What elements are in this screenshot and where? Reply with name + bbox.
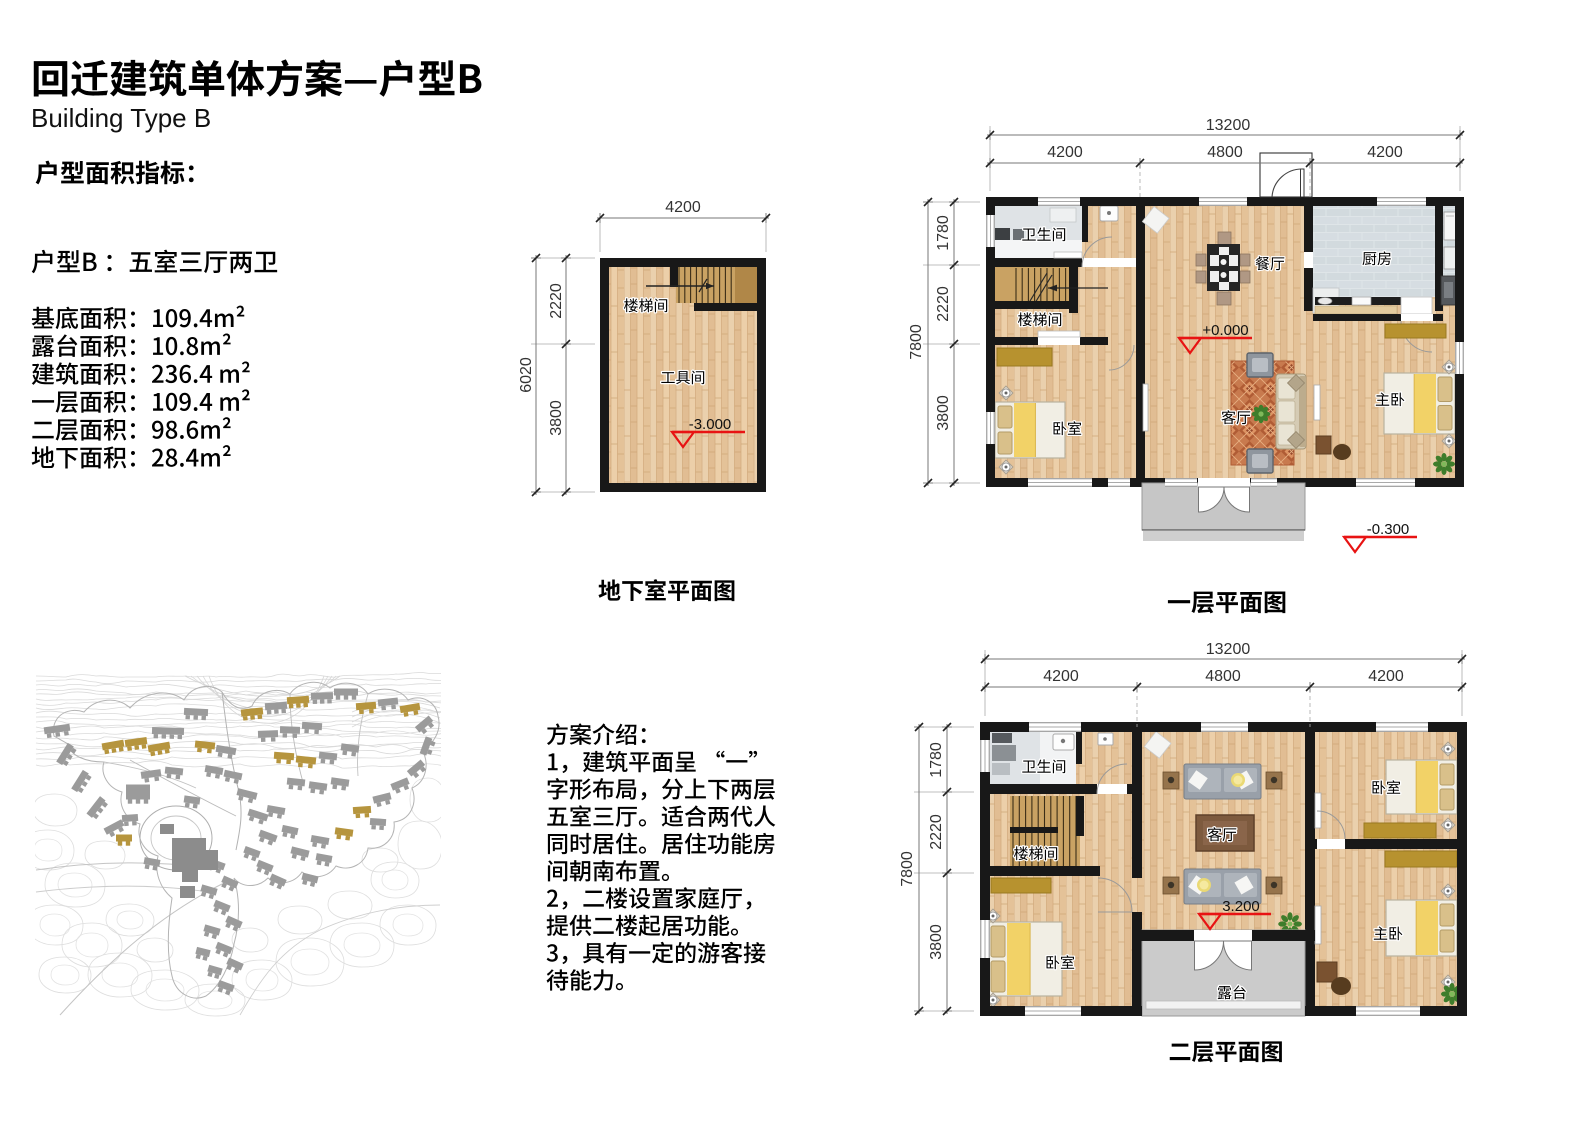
- svg-text:7800: 7800: [899, 851, 916, 887]
- svg-text:4200: 4200: [1367, 144, 1403, 161]
- svg-text:3800: 3800: [928, 924, 945, 960]
- svg-text:2220: 2220: [928, 814, 945, 850]
- svg-text:4200: 4200: [1043, 668, 1079, 685]
- svg-text:1780: 1780: [935, 215, 952, 251]
- svg-text:6020: 6020: [518, 357, 535, 393]
- svg-text:4800: 4800: [1205, 668, 1241, 685]
- svg-text:4200: 4200: [665, 199, 701, 216]
- svg-text:13200: 13200: [1206, 117, 1251, 134]
- svg-text:-3.000: -3.000: [689, 416, 732, 433]
- svg-text:1780: 1780: [928, 742, 945, 778]
- svg-text:13200: 13200: [1206, 641, 1251, 658]
- svg-text:3800: 3800: [548, 400, 565, 436]
- svg-text:2220: 2220: [548, 283, 565, 319]
- svg-text:Building Type B: Building Type B: [31, 103, 211, 133]
- svg-text:7800: 7800: [908, 324, 925, 360]
- svg-text:3800: 3800: [935, 395, 952, 431]
- svg-text:4200: 4200: [1047, 144, 1083, 161]
- svg-text:4200: 4200: [1368, 668, 1404, 685]
- svg-text:4800: 4800: [1207, 144, 1243, 161]
- svg-text:2220: 2220: [935, 286, 952, 322]
- svg-text:-0.300: -0.300: [1367, 521, 1410, 538]
- svg-text:+0.000: +0.000: [1202, 322, 1248, 339]
- svg-text:3.200: 3.200: [1222, 898, 1260, 915]
